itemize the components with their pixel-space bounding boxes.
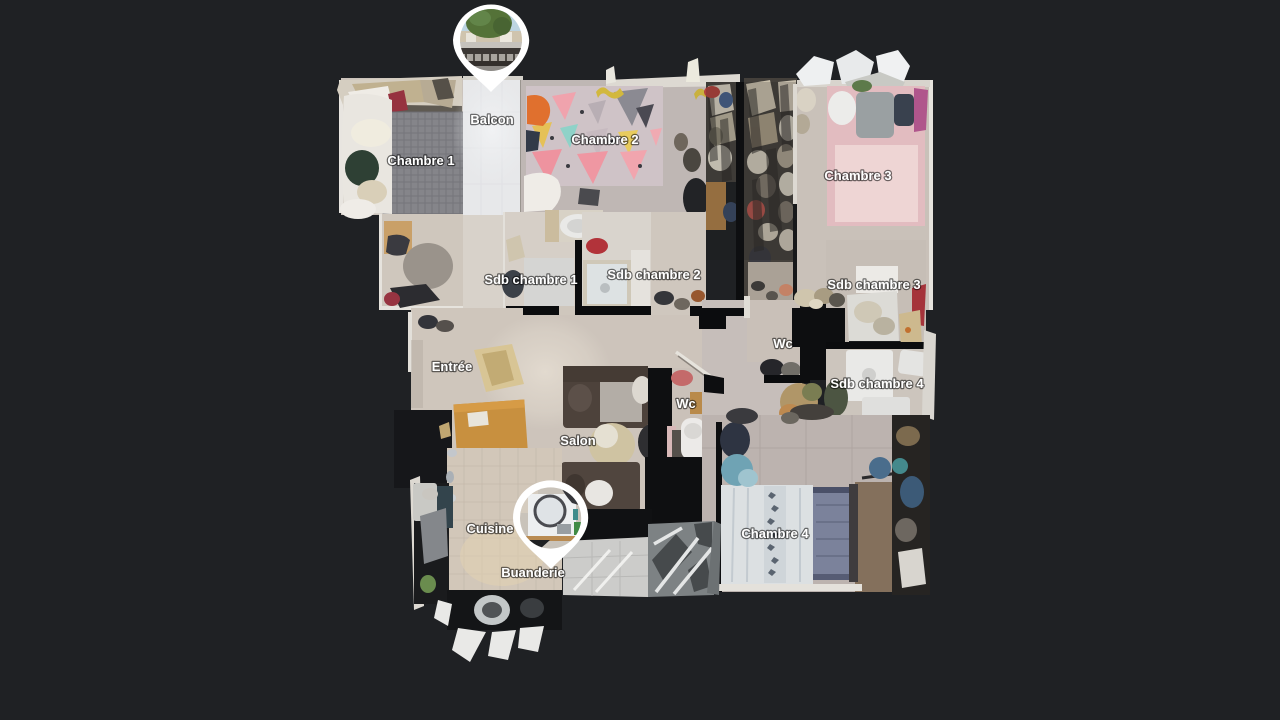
svg-text:Sdb chambre 2: Sdb chambre 2 — [607, 267, 700, 282]
svg-text:Buanderie: Buanderie — [501, 565, 565, 580]
svg-text:Wc: Wc — [676, 396, 696, 411]
svg-text:Chambre 3: Chambre 3 — [824, 168, 891, 183]
svg-text:Sdb chambre 4: Sdb chambre 4 — [830, 376, 924, 391]
svg-text:Entrée: Entrée — [432, 359, 472, 374]
svg-text:Chambre 1: Chambre 1 — [387, 153, 454, 168]
svg-text:Chambre 2: Chambre 2 — [571, 132, 638, 147]
svg-text:Salon: Salon — [560, 433, 595, 448]
svg-text:Balcon: Balcon — [470, 112, 513, 127]
svg-text:Chambre 4: Chambre 4 — [741, 526, 809, 541]
svg-text:Sdb chambre 3: Sdb chambre 3 — [827, 277, 920, 292]
svg-text:Sdb chambre 1: Sdb chambre 1 — [484, 272, 577, 287]
svg-text:Cuisine: Cuisine — [467, 521, 514, 536]
svg-text:Wc: Wc — [773, 336, 793, 351]
